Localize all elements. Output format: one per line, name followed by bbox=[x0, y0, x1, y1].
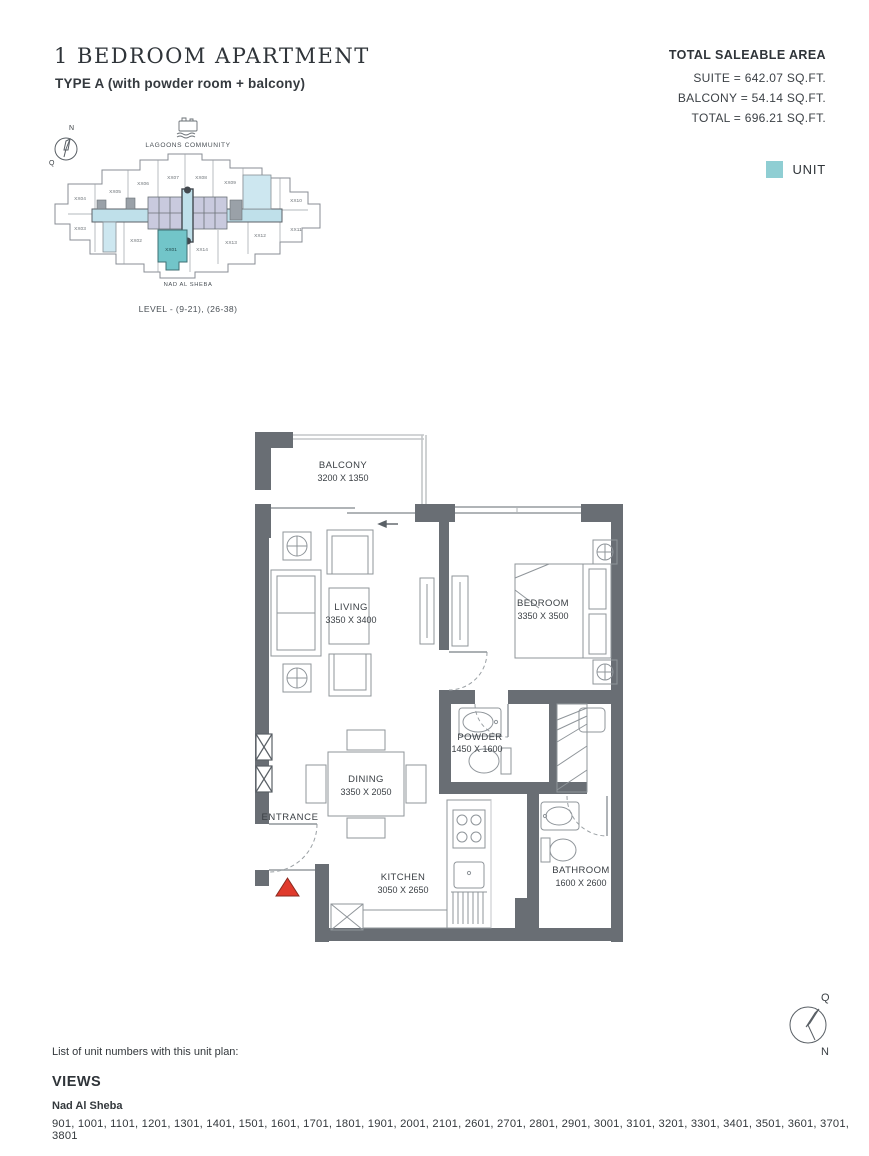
unit-label-xx02: XX02 bbox=[130, 238, 142, 244]
room-dims-balcony: 3200 X 1350 bbox=[317, 473, 368, 483]
keyplan-location-label: NAD AL SHEBA bbox=[164, 282, 213, 288]
wall-balcony-tl-v bbox=[255, 432, 271, 490]
unit-label-xx09: XX09 bbox=[224, 180, 236, 186]
wall-hall-b bbox=[508, 690, 623, 704]
armchair-bottom bbox=[329, 654, 371, 696]
room-dims-bathroom: 1600 X 2600 bbox=[555, 878, 606, 888]
room-dims-powder: 1450 X 1600 bbox=[451, 744, 502, 754]
side-table-top bbox=[283, 532, 311, 560]
wall-top-mid bbox=[415, 504, 455, 522]
room-label-kitchen: KITCHEN bbox=[381, 872, 426, 883]
saleable-area-block: TOTAL SALEABLE AREA SUITE = 642.07 SQ.FT… bbox=[669, 48, 826, 128]
room-label-powder: POWDER bbox=[457, 732, 502, 743]
entrance-marker-icon bbox=[276, 878, 299, 896]
closet bbox=[557, 704, 587, 792]
entrance-door-arc bbox=[269, 824, 317, 872]
slider-arrow-icon bbox=[379, 521, 398, 527]
bedroom-door-arc bbox=[449, 652, 487, 690]
entrance-label: ENTRANCE bbox=[261, 812, 318, 823]
kitchen-low-counter bbox=[363, 910, 447, 928]
wall-kitchen-bath-step bbox=[515, 898, 527, 941]
fridge bbox=[331, 904, 363, 930]
bathroom-sink bbox=[541, 802, 579, 830]
views-heading: VIEWS bbox=[52, 1074, 101, 1090]
unit-label-xx01: XX01 bbox=[165, 247, 177, 253]
room-label-dining: DINING bbox=[348, 774, 384, 785]
unit-label-xx03: XX03 bbox=[74, 226, 86, 232]
unit-numbers-list: 901, 1001, 1101, 1201, 1301, 1401, 1501,… bbox=[52, 1118, 869, 1142]
tv-unit-bedroom bbox=[452, 576, 468, 646]
keyplan: N Q LAGOONS COMMUNITY bbox=[40, 112, 340, 327]
keyplan-compass-q: Q bbox=[49, 160, 55, 167]
unit-label-xx04: XX04 bbox=[74, 196, 86, 202]
wall-entry-stub bbox=[255, 870, 269, 886]
page-title: 1 BEDROOM APARTMENT bbox=[54, 44, 370, 68]
unit-label-xx12: XX12 bbox=[254, 233, 266, 239]
floorplan: BALCONY 3200 X 1350 LIVING 3350 X 3400 B… bbox=[243, 418, 643, 948]
stove bbox=[453, 810, 485, 848]
view-name: Nad Al Sheba bbox=[52, 1100, 123, 1112]
wall-bathroom-left bbox=[527, 794, 539, 928]
area-total: TOTAL = 696.21 SQ.FT. bbox=[669, 108, 826, 128]
area-balcony: BALCONY = 54.14 SQ.FT. bbox=[669, 88, 826, 108]
unit-label-xx06: XX06 bbox=[137, 181, 149, 187]
room-label-bedroom: BEDROOM bbox=[517, 598, 569, 609]
brochure-page: 1 BEDROOM APARTMENT TYPE A (with powder … bbox=[0, 0, 869, 1156]
room-label-living: LIVING bbox=[334, 602, 368, 613]
room-dims-bedroom: 3350 X 3500 bbox=[517, 611, 568, 621]
bottom-compass: Q N bbox=[775, 985, 855, 1065]
page-subtitle: TYPE A (with powder room + balcony) bbox=[55, 76, 305, 91]
drainer bbox=[451, 892, 487, 924]
wall-bathroom-bottom bbox=[527, 928, 623, 941]
keyplan-amenity-right bbox=[243, 175, 271, 209]
wall-separator bbox=[439, 522, 449, 650]
sofa bbox=[271, 570, 321, 656]
lagoons-community-icon bbox=[177, 118, 197, 138]
unit-label-xx07: XX07 bbox=[167, 175, 179, 181]
unit-label-xx08: XX08 bbox=[195, 175, 207, 181]
unit-legend-swatch bbox=[766, 161, 783, 178]
unit-list-label: List of unit numbers with this unit plan… bbox=[52, 1046, 238, 1058]
unit-label-xx10: XX10 bbox=[290, 198, 302, 204]
tv-unit-living bbox=[420, 578, 434, 644]
unit-label-xx14: XX14 bbox=[196, 247, 208, 253]
bottom-compass-icon bbox=[790, 1007, 826, 1043]
lagoons-community-label: LAGOONS COMMUNITY bbox=[145, 142, 230, 149]
armchair-top bbox=[327, 530, 373, 574]
unit-label-xx13: XX13 bbox=[225, 240, 237, 246]
keyplan-compass-icon: N Q bbox=[49, 125, 77, 167]
wall-powder-left bbox=[439, 694, 451, 794]
bottom-compass-n: N bbox=[821, 1046, 829, 1058]
unit-label-xx05: XX05 bbox=[109, 189, 121, 195]
room-dims-living: 3350 X 3400 bbox=[325, 615, 376, 625]
bottom-compass-q: Q bbox=[821, 992, 830, 1004]
area-heading: TOTAL SALEABLE AREA bbox=[669, 48, 826, 62]
room-label-bathroom: BATHROOM bbox=[552, 865, 609, 876]
wall-powder-closet-divider bbox=[549, 704, 557, 792]
area-suite: SUITE = 642.07 SQ.FT. bbox=[669, 68, 826, 88]
keyplan-compass-n: N bbox=[69, 125, 74, 132]
room-dims-kitchen: 3050 X 2650 bbox=[377, 885, 428, 895]
keyplan-amenity-left bbox=[103, 222, 116, 252]
keyplan-level-label: LEVEL - (9-21), (26-38) bbox=[139, 304, 238, 314]
unit-legend: UNIT bbox=[766, 161, 826, 178]
room-label-balcony: BALCONY bbox=[319, 460, 367, 471]
washer bbox=[579, 708, 605, 732]
kitchen-counter bbox=[447, 800, 491, 928]
unit-legend-label: UNIT bbox=[792, 162, 826, 177]
wall-right bbox=[611, 516, 623, 942]
bathroom-toilet bbox=[541, 838, 576, 862]
room-dims-dining: 3350 X 2050 bbox=[340, 787, 391, 797]
side-table-bottom bbox=[283, 664, 311, 692]
unit-label-xx11: XX11 bbox=[290, 227, 302, 233]
